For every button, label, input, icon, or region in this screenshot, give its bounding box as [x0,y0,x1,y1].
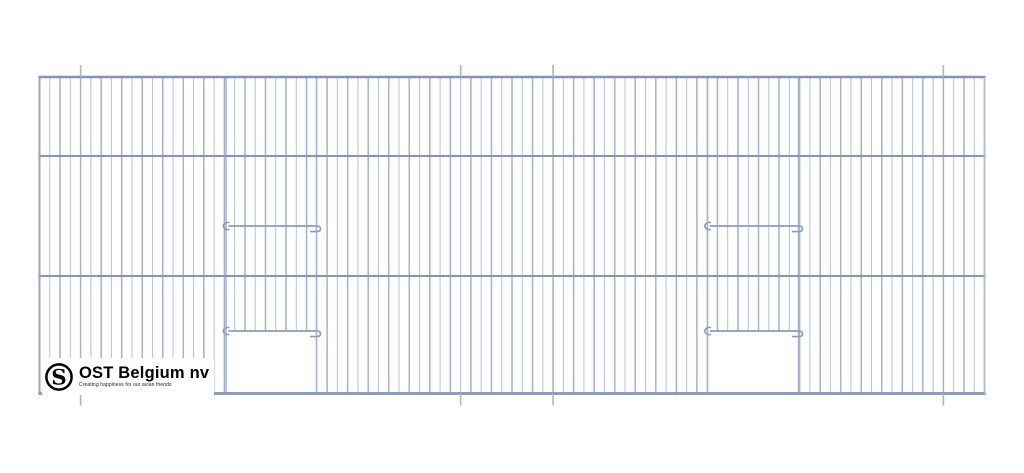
cage-front-drawing: S OST Belgium nv Creating happiness for … [0,0,1024,473]
brand-logo: S OST Belgium nv Creating happiness for … [42,358,214,395]
brand-name: OST Belgium nv [79,365,209,381]
brand-tagline: Creating happiness for our avian friends [79,382,209,388]
door-opening-edges-1 [226,77,317,394]
door-opening-edges-2 [708,77,799,394]
mesh-panel-svg [0,0,1024,473]
emblem-letter: S [51,365,67,390]
door-2-rails [705,222,803,336]
brand-emblem-icon: S [42,360,76,394]
vertical-wires [40,77,985,394]
